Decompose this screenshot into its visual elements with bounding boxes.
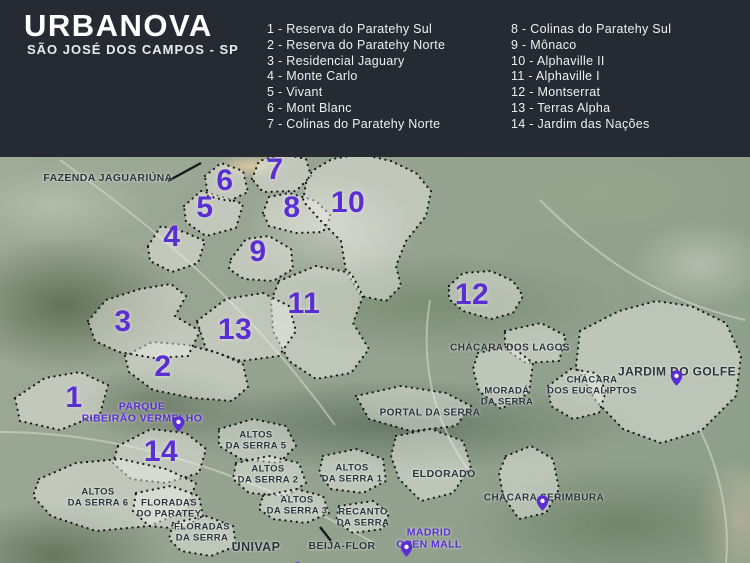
region-number-2: 2 (154, 350, 171, 384)
region-number-5: 5 (196, 191, 213, 225)
legend-item: 6 - Mont Blanc (267, 101, 445, 117)
legend-column-1: 1 - Reserva do Paratehy Sul2 - Reserva d… (267, 22, 445, 133)
region-number-14: 14 (144, 435, 178, 469)
legend-item: 13 - Terras Alpha (511, 101, 671, 117)
portal-da-serra-label: PORTAL DA SERRA (380, 407, 481, 418)
map-pin-icon (534, 492, 551, 514)
fazenda-pointer-line (168, 163, 201, 181)
floradas-do-paratey-label: FLORADASDO PARATEY (137, 498, 202, 519)
map-pin-icon (668, 367, 685, 389)
legend-item: 9 - Mônaco (511, 38, 671, 54)
region-outline-residencial-jaguary (88, 284, 200, 358)
altos-da-serra-2-label: ALTOSDA SERRA 2 (238, 464, 299, 485)
region-number-11: 11 (288, 287, 321, 321)
recanto-da-serra-label: RECANTODA SERRA (337, 507, 389, 528)
legend-column-2: 8 - Colinas do Paratehy Sul9 - Mônaco10 … (511, 22, 671, 133)
legend-item: 10 - Alphaville II (511, 54, 671, 70)
urbanova-map-page: 1234567891011121314 FAZENDA JAGUARIÚNACH… (0, 0, 750, 563)
page-title: URBANOVA (24, 8, 213, 44)
legend-item: 11 - Alphaville I (511, 69, 671, 85)
region-number-6: 6 (216, 164, 233, 198)
map-pin-icon (170, 413, 187, 435)
eldorado-label: ELDORADO (412, 469, 475, 481)
map-pin-icon (398, 538, 415, 560)
region-number-9: 9 (249, 235, 266, 269)
fazenda-jaguariuna-label: FAZENDA JAGUARIÚNA (43, 173, 172, 185)
legend-item: 12 - Montserrat (511, 85, 671, 101)
legend-item: 4 - Monte Carlo (267, 69, 445, 85)
header: URBANOVA SÃO JOSÉ DOS CAMPOS - SP 1 - Re… (0, 0, 750, 157)
altos-da-serra-5-label: ALTOSDA SERRA 5 (226, 430, 287, 451)
region-outline-eldorado (391, 429, 471, 501)
region-number-10: 10 (331, 186, 365, 220)
legend-item: 1 - Reserva do Paratehy Sul (267, 22, 445, 38)
altos-da-serra-6-label: ALTOSDA SERRA 6 (68, 487, 129, 508)
region-number-13: 13 (218, 313, 252, 347)
altos-da-serra-3-label: ALTOSDA SERRA 3 (267, 495, 328, 516)
region-number-3: 3 (114, 305, 131, 339)
legend-item: 7 - Colinas do Paratehy Norte (267, 117, 445, 133)
beija-flor-pointer-line (320, 527, 331, 541)
chacara-dos-lagos-label: CHÁCARA DOS LAGOS (450, 342, 570, 353)
legend-item: 2 - Reserva do Paratehy Norte (267, 38, 445, 54)
region-number-8: 8 (283, 191, 300, 225)
beija-flor-label: BEIJA-FLOR (309, 541, 376, 553)
region-number-4: 4 (163, 220, 180, 254)
legend-item: 5 - Vivant (267, 85, 445, 101)
legend-item: 3 - Residencial Jaguary (267, 54, 445, 70)
legend-item: 8 - Colinas do Paratehy Sul (511, 22, 671, 38)
univap-label: UNIVAP (232, 540, 281, 554)
map-pin-icon (289, 559, 306, 563)
morada-da-serra-label: MORADÁDA SERRA (481, 386, 533, 407)
page-subtitle: SÃO JOSÉ DOS CAMPOS - SP (27, 42, 239, 57)
floradas-da-serra-label: FLORADASDA SERRA (174, 522, 230, 543)
chacara-dos-eucaliptos-label: CHÁCARADOS EUCALIPTOS (547, 375, 637, 396)
region-number-7: 7 (266, 153, 283, 187)
region-number-1: 1 (65, 381, 82, 415)
legend-item: 14 - Jardim das Nações (511, 117, 671, 133)
region-number-12: 12 (455, 278, 489, 312)
altos-da-serra-1-label: ALTOSDA SERRA 1 (322, 463, 383, 484)
